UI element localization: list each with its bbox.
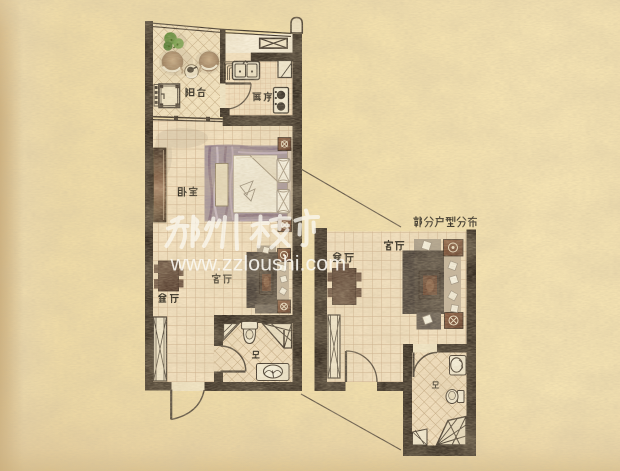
- svg-text:www.zzloushi.com: www.zzloushi.com: [170, 252, 347, 276]
